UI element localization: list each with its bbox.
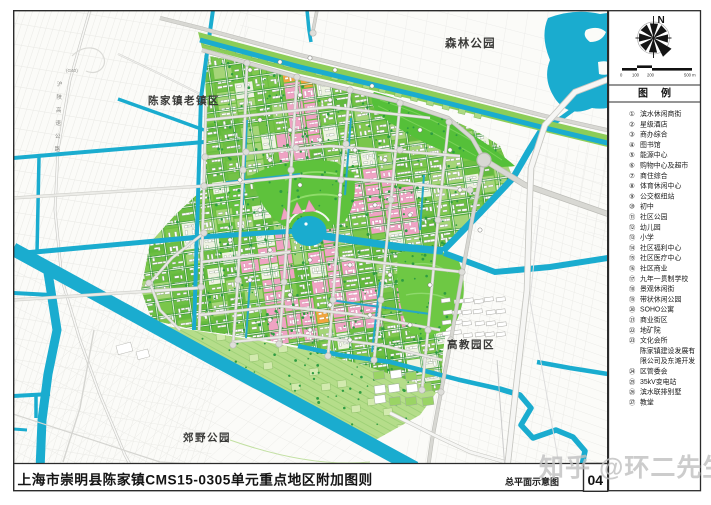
svg-text:⑱: ⑱ bbox=[629, 285, 636, 293]
svg-text:社区公园: 社区公园 bbox=[640, 212, 668, 221]
svg-text:购物中心及超市: 购物中心及超市 bbox=[640, 161, 688, 170]
svg-text:⑯: ⑯ bbox=[629, 265, 636, 273]
svg-text:⑰: ⑰ bbox=[629, 275, 636, 283]
svg-text:④: ④ bbox=[629, 142, 635, 149]
svg-text:陈家镇老镇区: 陈家镇老镇区 bbox=[148, 94, 220, 107]
svg-text:㉓: ㉓ bbox=[629, 337, 636, 345]
svg-text:⑥: ⑥ bbox=[629, 163, 635, 170]
svg-text:幼儿园: 幼儿园 bbox=[640, 222, 661, 231]
svg-text:速: 速 bbox=[56, 120, 62, 127]
svg-text:㉖: ㉖ bbox=[629, 388, 636, 396]
svg-text:100: 100 bbox=[632, 73, 640, 78]
svg-text:⑲: ⑲ bbox=[629, 295, 636, 303]
svg-text:沪: 沪 bbox=[57, 80, 62, 88]
svg-text:图书馆: 图书馆 bbox=[640, 140, 661, 149]
svg-text:区管委会: 区管委会 bbox=[640, 367, 668, 376]
svg-text:陕: 陕 bbox=[57, 93, 63, 101]
svg-text:⑨: ⑨ bbox=[629, 193, 635, 200]
svg-text:SOHO公寓: SOHO公寓 bbox=[640, 305, 674, 314]
svg-text:景观休闲街: 景观休闲街 bbox=[640, 284, 675, 293]
svg-text:路: 路 bbox=[55, 145, 61, 153]
svg-text:社区医疗中心: 社区医疗中心 bbox=[640, 253, 681, 262]
svg-text:⑳: ⑳ bbox=[629, 306, 636, 314]
svg-text:高: 高 bbox=[56, 106, 62, 114]
svg-text:教堂: 教堂 bbox=[640, 397, 654, 406]
svg-text:文化会所: 文化会所 bbox=[640, 336, 668, 345]
svg-text:⑭: ⑭ bbox=[629, 244, 636, 252]
svg-text:森林公园: 森林公园 bbox=[445, 36, 496, 50]
svg-text:㉒: ㉒ bbox=[629, 326, 636, 334]
svg-text:商业街区: 商业街区 bbox=[640, 315, 668, 324]
svg-text:体育休闲中心: 体育休闲中心 bbox=[640, 181, 681, 190]
svg-text:能源中心: 能源中心 bbox=[640, 150, 668, 159]
svg-text:35kV变电站: 35kV变电站 bbox=[640, 377, 676, 386]
svg-text:㉑: ㉑ bbox=[629, 316, 636, 324]
svg-text:带状休闲公园: 带状休闲公园 bbox=[640, 294, 681, 303]
svg-text:②: ② bbox=[629, 121, 635, 128]
svg-text:图例: 图例 bbox=[638, 87, 684, 100]
svg-text:滨水联排别墅: 滨水联排别墅 bbox=[640, 387, 681, 396]
svg-text:㉔: ㉔ bbox=[629, 368, 636, 376]
svg-text:商办综合: 商办综合 bbox=[640, 130, 668, 139]
svg-text:限公司及东滩开发: 限公司及东滩开发 bbox=[640, 356, 695, 365]
svg-text:200: 200 bbox=[647, 73, 655, 78]
svg-text:㉗: ㉗ bbox=[629, 398, 636, 406]
svg-text:陈家镇建设发展有: 陈家镇建设发展有 bbox=[640, 346, 695, 355]
svg-text:⑮: ⑮ bbox=[629, 254, 636, 262]
svg-text:地矿院: 地矿院 bbox=[640, 325, 661, 334]
svg-text:社区商业: 社区商业 bbox=[640, 264, 668, 273]
svg-text:商住综合: 商住综合 bbox=[640, 171, 668, 180]
svg-text:小学: 小学 bbox=[640, 233, 654, 242]
svg-text:星级酒店: 星级酒店 bbox=[640, 119, 668, 128]
svg-text:知乎 @环二先生: 知乎 @环二先生 bbox=[539, 454, 711, 482]
svg-text:③: ③ bbox=[629, 132, 635, 139]
svg-text:500 m: 500 m bbox=[684, 73, 696, 78]
svg-text:⑫: ⑫ bbox=[629, 223, 636, 231]
svg-text:N: N bbox=[658, 15, 665, 26]
svg-text:⑬: ⑬ bbox=[629, 234, 636, 242]
svg-text:㉕: ㉕ bbox=[629, 378, 636, 386]
svg-text:⑪: ⑪ bbox=[629, 213, 636, 221]
svg-text:社区福利中心: 社区福利中心 bbox=[640, 243, 681, 252]
svg-text:高教园区: 高教园区 bbox=[447, 338, 495, 351]
svg-text:郊野公园: 郊野公园 bbox=[183, 431, 231, 444]
svg-text:(G40): (G40) bbox=[66, 68, 78, 73]
svg-text:九年一贯制学校: 九年一贯制学校 bbox=[640, 274, 688, 283]
svg-text:上海市崇明县陈家镇CMS15-0305单元重点地区附加图则: 上海市崇明县陈家镇CMS15-0305单元重点地区附加图则 bbox=[18, 472, 373, 488]
svg-text:公: 公 bbox=[55, 134, 61, 140]
svg-text:滨水休闲商街: 滨水休闲商街 bbox=[640, 109, 681, 118]
svg-text:①: ① bbox=[629, 111, 635, 118]
svg-text:⑤: ⑤ bbox=[629, 152, 635, 159]
svg-text:初中: 初中 bbox=[640, 202, 654, 211]
svg-text:⑦: ⑦ bbox=[629, 173, 635, 180]
svg-text:⑧: ⑧ bbox=[629, 183, 635, 190]
svg-text:⑩: ⑩ bbox=[629, 204, 635, 211]
svg-text:公交枢纽站: 公交枢纽站 bbox=[640, 191, 675, 200]
